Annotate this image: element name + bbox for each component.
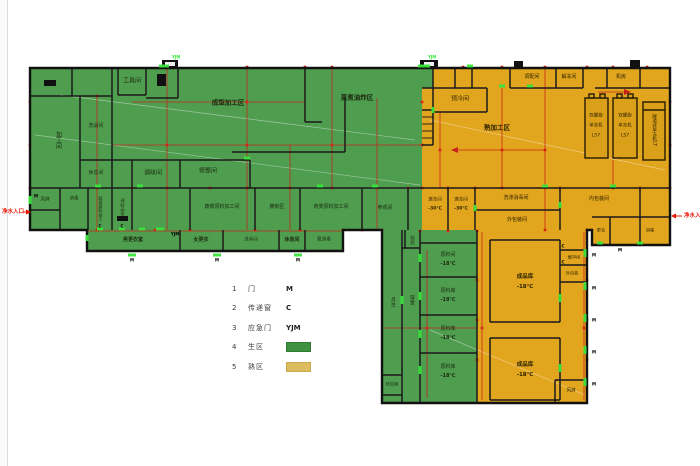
room-label-raw-room: 原料间 [440, 253, 455, 259]
page-edge-line [0, 0, 8, 466]
temp-label-raw-store2: -18℃ [440, 336, 455, 342]
legend-code: M [286, 285, 293, 293]
raw-zone-swatch [286, 342, 311, 352]
room-label-innerpack: 内包装间 [589, 197, 609, 203]
room-label-raw-store2: 原料库 [440, 327, 455, 333]
legend-num: 5 [232, 363, 248, 371]
room-label-buffer: 缓冲间 [568, 256, 581, 261]
machine-label-spiral1-l2: 单冻机 [589, 123, 603, 128]
room-label-processing: 加工间 [54, 131, 61, 149]
temp-label-quickfreeze2: -30℃ [454, 206, 468, 211]
door-marker-letter: M [592, 382, 596, 387]
temp-label-raw-store1: -18℃ [440, 298, 455, 304]
room-label-precool: 预冷间 [451, 97, 469, 104]
door-marker-letter: M [130, 258, 134, 263]
temp-label-product-store2: -18℃ [517, 372, 534, 378]
room-label-veg-raw: 蔬菜原料加工间 [204, 205, 239, 211]
door-marker-letter: M [618, 248, 622, 253]
room-label-platform: 月台 [389, 297, 395, 307]
window-marker-letter: C [121, 224, 124, 229]
room-label-raw-store3: 原料库 [440, 365, 455, 371]
legend-row-door: 1 门 M [232, 279, 311, 299]
zone-label-cooked-area: 熟加工区 [484, 124, 510, 131]
left-entrance-label: 净水入口 [2, 207, 24, 215]
room-label-tools: 工具间 [123, 79, 141, 86]
machine-label-spiral2-l2: 单冻机 [618, 123, 632, 128]
machine-label-spiral2-l3: LS7 [621, 133, 629, 138]
temp-label-product-store1: -18℃ [517, 284, 534, 290]
room-label-outerpack: 外包装间 [507, 218, 527, 224]
legend-num: 1 [232, 285, 248, 293]
room-label-wash: 洗消间 [88, 124, 103, 130]
right-entrance-label: 净水入口 [684, 211, 700, 219]
door-marker-letter: M [592, 318, 596, 323]
legend-label: 熟区 [248, 362, 286, 372]
room-label-inspect: 检验 [409, 236, 414, 245]
room-label-hall: 穿堂 [408, 295, 414, 305]
chute-label-season-feed: 调味品投入 [120, 199, 125, 220]
legend: 1 门 M 2 传递窗 C 3 应急门 YJM 4 生区 5 熟区 [232, 279, 311, 377]
zone-label-boiling: 蒸煮油炸区 [341, 94, 374, 101]
chute-label-veg-feed: 蔬菜原料投入 [98, 196, 103, 221]
room-label-thaw: 解冻间 [561, 75, 576, 81]
legend-row-window: 2 传递窗 C [232, 299, 311, 319]
room-label-washdisinfect: 洗涤消毒间 [503, 196, 528, 202]
legend-num: 4 [232, 343, 248, 351]
room-label-raw-store1: 原料库 [440, 289, 455, 295]
room-label-airshower1: 风淋 [41, 197, 50, 202]
door-marker-letter: M [592, 253, 596, 258]
window-marker-letter: C [562, 260, 565, 265]
legend-row-raw-zone: 4 生区 [232, 338, 311, 358]
legend-row-emergency: 3 应急门 YJM [232, 318, 311, 338]
door-marker-letter: M [215, 258, 219, 263]
emergency-marker-letter: YJM [428, 55, 436, 60]
temp-label-quickfreeze1: -30℃ [428, 206, 442, 211]
room-label-product-store2: 成品库 [517, 362, 534, 368]
room-label-dress-m: 男更衣室 [123, 238, 143, 244]
floor-plan-canvas [0, 0, 700, 466]
floor-plan-page: 工具间 洗消间 加工间 休息间 调味间 修整间 成型加工区 蒸煮油炸区 蔬菜原料… [0, 0, 700, 466]
room-label-pickling: 腌制区 [269, 205, 284, 211]
door-marker-letter: M [34, 194, 38, 199]
room-label-rest1: 休息间 [88, 171, 103, 177]
room-label-heatx: 热交换 [386, 383, 399, 388]
room-label-trimming: 修整间 [199, 169, 217, 176]
zone-fills [30, 68, 670, 403]
legend-label: 应急门 [248, 323, 286, 333]
room-label-outerpack2: 外包装 [566, 272, 579, 277]
room-label-disinfect2: 消毒 [646, 229, 654, 234]
temp-label-raw-room: -18℃ [440, 262, 455, 268]
room-label-washroom: 洗手间 [244, 237, 258, 242]
room-label-meat-raw: 肉类原料加工间 [313, 205, 348, 211]
window-marker-letter: C [562, 244, 565, 249]
temp-label-raw-store3: -18℃ [440, 374, 455, 380]
machine-label-tunnel: 隧道式单冻机LT [651, 114, 656, 146]
emergency-marker-letter: YJM [172, 55, 180, 60]
legend-label: 传递窗 [248, 303, 286, 313]
legend-code: YJM [286, 324, 301, 332]
machine-label-spiral2-l1: 双螺旋 [618, 113, 632, 118]
window-marker-letter: C [99, 224, 102, 229]
legend-num: 3 [232, 324, 248, 332]
room-label-quickfreeze2: 速冻间 [454, 197, 468, 202]
emergency-marker-letter: YJM [171, 232, 179, 237]
machine-label-spiral1-l1: 双螺旋 [589, 113, 603, 118]
room-label-seasoning: 调味间 [144, 171, 162, 178]
room-label-product-store1: 成品库 [517, 274, 534, 280]
room-label-dress-f: 女更衣 [193, 238, 208, 244]
zone-label-forming: 成型加工区 [212, 99, 245, 106]
room-label-airshower2: 风淋 [567, 388, 576, 393]
door-marker-letter: M [592, 350, 596, 355]
door-marker-letter: M [296, 258, 300, 263]
room-label-machineroom: 机房 [616, 75, 626, 81]
legend-num: 2 [232, 304, 248, 312]
room-label-dress3: 更衣 [597, 229, 605, 234]
legend-row-cooked-zone: 5 熟区 [232, 357, 311, 377]
room-label-mixing: 调配间 [524, 75, 539, 81]
legend-code: C [286, 304, 291, 312]
legend-label: 门 [248, 284, 286, 294]
room-label-boot: 靴消毒 [317, 237, 331, 242]
machine-label-spiral1-l3: LS7 [592, 133, 600, 138]
cooked-zone-swatch [286, 362, 311, 372]
door-marker-letter: M [592, 286, 596, 291]
legend-label: 生区 [248, 342, 286, 352]
room-label-quickfreeze1: 速冻间 [428, 197, 442, 202]
room-label-disinfect1: 消毒 [70, 196, 79, 201]
room-label-visitor: 参观间 [377, 206, 392, 212]
room-label-rest2: 休息间 [284, 238, 299, 244]
